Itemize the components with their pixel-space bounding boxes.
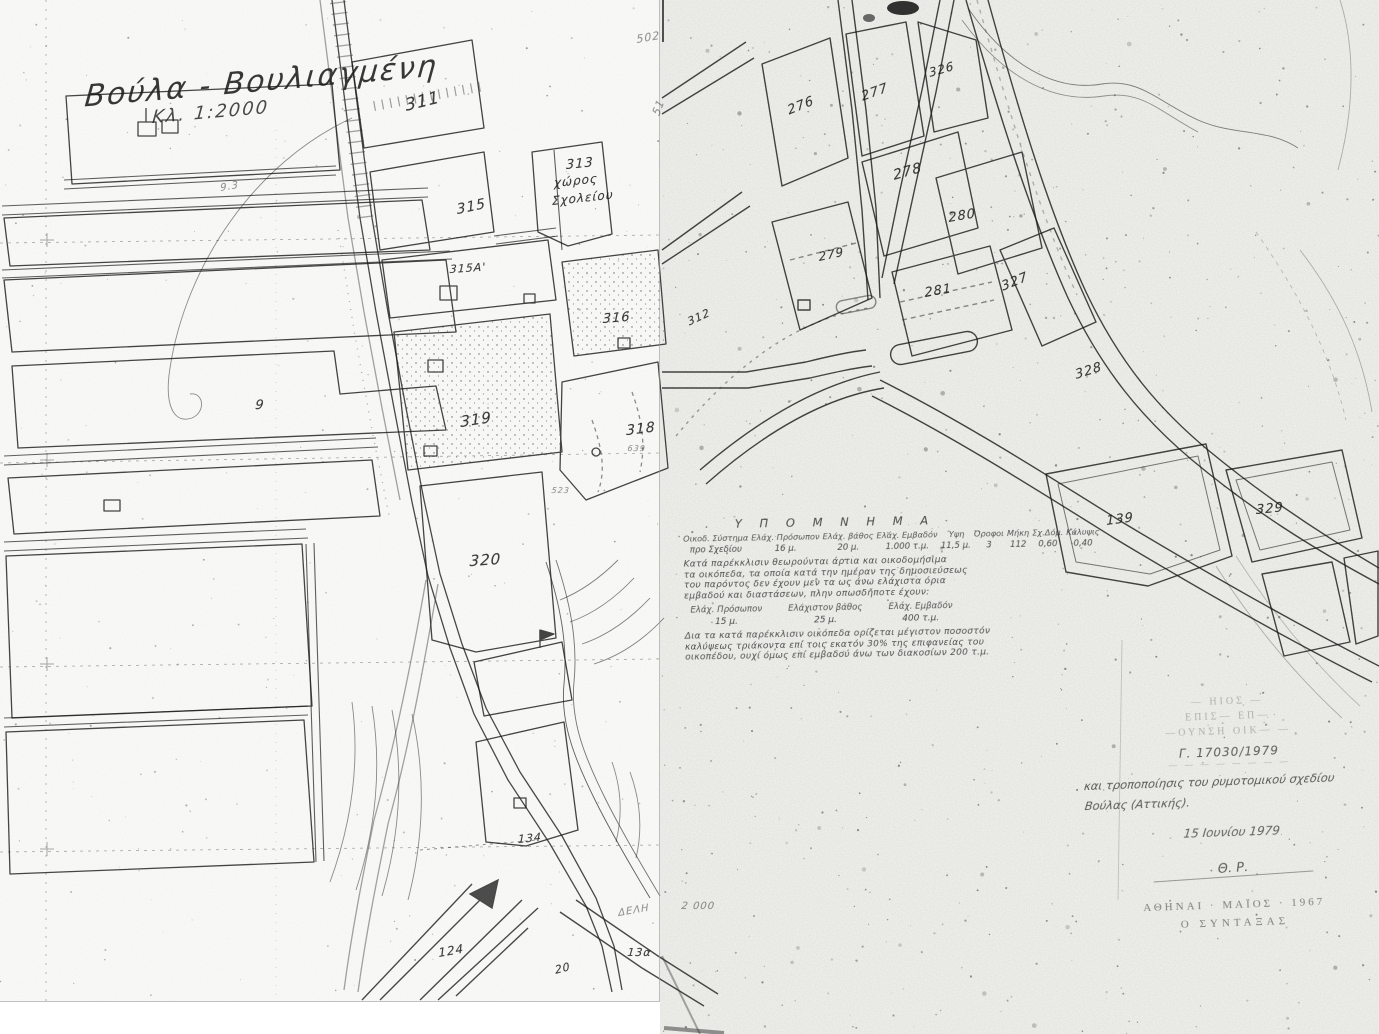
map-label-9: 9 [254, 398, 265, 413]
legend-column: Μήκη112 [1007, 528, 1030, 550]
map-label-523: 523 [551, 486, 570, 495]
signature: Θ. Ρ. [1153, 855, 1314, 882]
map-label-320: 320 [469, 550, 501, 570]
handwritten-date: 15 Ιουνίου 1979 [1085, 820, 1378, 844]
legend-column: Ελάχ. Πρόσωπον16 μ. [751, 531, 820, 554]
legend-block: Υ Π Ο Μ Ν Η Μ Α Οικοδ. Σύστημαπρο Σχεδίο… [683, 510, 1105, 663]
legend-column: Όροφοι3 [974, 528, 1005, 551]
legend-column: Ελάχιστον βάθος25 μ. [788, 603, 863, 626]
map-label-2 000: 2 000 [681, 901, 716, 912]
legend-exception-row: Ελάχ. Πρόσωπον15 μ.Ελάχιστον βάθος25 μ.Ε… [690, 598, 1104, 627]
legend-column: Ελάχ. Εμβαδόν400 τ.μ. [888, 601, 952, 624]
legend-column: Ελάχ. Εμβαδόν1.000 τ.μ. [876, 529, 937, 552]
legend-column: Ελάχ. Πρόσωπον15 μ. [690, 604, 762, 627]
stamp-faint-lines: — ΗΙΟΣ —ΕΠΙΣ— ΕΠ——ΟΥΝΣΗ ΟΙΚ— — [1081, 689, 1374, 744]
map-label-134: 134 [518, 830, 542, 846]
legend-column: Ελάχ. βάθος20 μ. [823, 530, 874, 553]
legend-column: Κάλυψις0,40 [1066, 526, 1100, 549]
map-label-329: 329 [1256, 500, 1284, 518]
scanned-cadastral-map: Βούλα - Βουλιαγμένη Κλ. 1:2000 311502513… [0, 0, 1379, 1034]
map-label-313: 313 [566, 155, 594, 173]
map-label-315Α': 315Α' [450, 260, 487, 276]
legend-column: Ύψη11,5 μ. [940, 529, 970, 552]
map-label-13α: 13α [627, 946, 653, 959]
legend-column: Οικοδ. Σύστημαπρο Σχεδίου [683, 533, 748, 556]
legend-column: Σχ.Δόμ.0,60 [1032, 527, 1063, 550]
map-label-316: 316 [603, 310, 631, 328]
legend-paragraph-1: Κατά παρέκκλισιν θεωρούνται άρτια και οι… [683, 552, 1104, 601]
legend-table: Οικοδ. Σύστημαπρο ΣχεδίουΕλάχ. Πρόσωπον1… [683, 526, 1103, 555]
approval-stamp-block: — ΗΙΟΣ —ΕΠΙΣ— ΕΠ——ΟΥΝΣΗ ΟΙΚ— — Γ. 17030/… [1081, 689, 1379, 934]
map-label-639: 639 [627, 444, 646, 453]
